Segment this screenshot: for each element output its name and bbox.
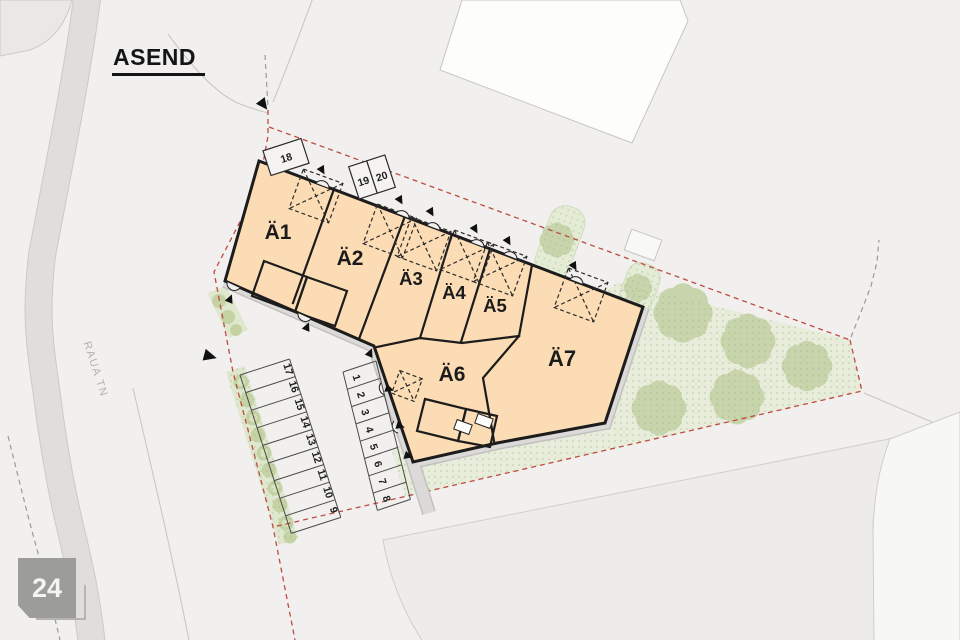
plot-number-badge: 24: [18, 558, 76, 618]
parking-number: 3: [358, 408, 371, 417]
neighbour-shed: [624, 229, 662, 261]
unit-label-a5: Ä5: [483, 295, 507, 316]
parking-number: 5: [367, 442, 380, 451]
unit-label-a7: Ä7: [548, 346, 576, 371]
parking-number: 4: [362, 425, 375, 434]
street-edge: [273, 0, 314, 102]
unit-label-a4: Ä4: [442, 282, 466, 303]
neighbour-building: [440, 0, 688, 143]
unit-label-a3: Ä3: [399, 268, 423, 289]
parking-number: 2: [354, 390, 367, 399]
street-edge: [133, 388, 190, 640]
parking-number: 17: [280, 362, 295, 377]
unit-label-a1: Ä1: [265, 221, 292, 244]
parking-number: 10: [320, 485, 335, 500]
parking-number: 8: [380, 494, 393, 503]
parking-number: 6: [371, 460, 384, 469]
road-raua-tn: [39, 0, 92, 640]
page-title: ASEND: [112, 44, 205, 76]
parking-number: 14: [297, 415, 312, 430]
direction-arrow-icon: [203, 349, 219, 364]
parking-number: 11: [315, 468, 330, 482]
unit-label-a6: Ä6: [439, 363, 466, 386]
unit-label-a2: Ä2: [337, 247, 364, 270]
parking-number: 15: [292, 397, 307, 412]
parking-number: 7: [375, 477, 388, 486]
parking-number: 13: [303, 432, 318, 447]
road-corner-block: [0, 0, 72, 56]
site-plan: 18 19 20 17 16 15 14 13 12 11 10 9 1 2 3…: [0, 0, 960, 640]
site-plan-canvas: 18 19 20 17 16 15 14 13 12 11 10 9 1 2 3…: [0, 0, 960, 640]
parking-number: 12: [309, 450, 324, 465]
parking-number: 1: [350, 373, 363, 382]
parking-number: 16: [286, 379, 301, 394]
